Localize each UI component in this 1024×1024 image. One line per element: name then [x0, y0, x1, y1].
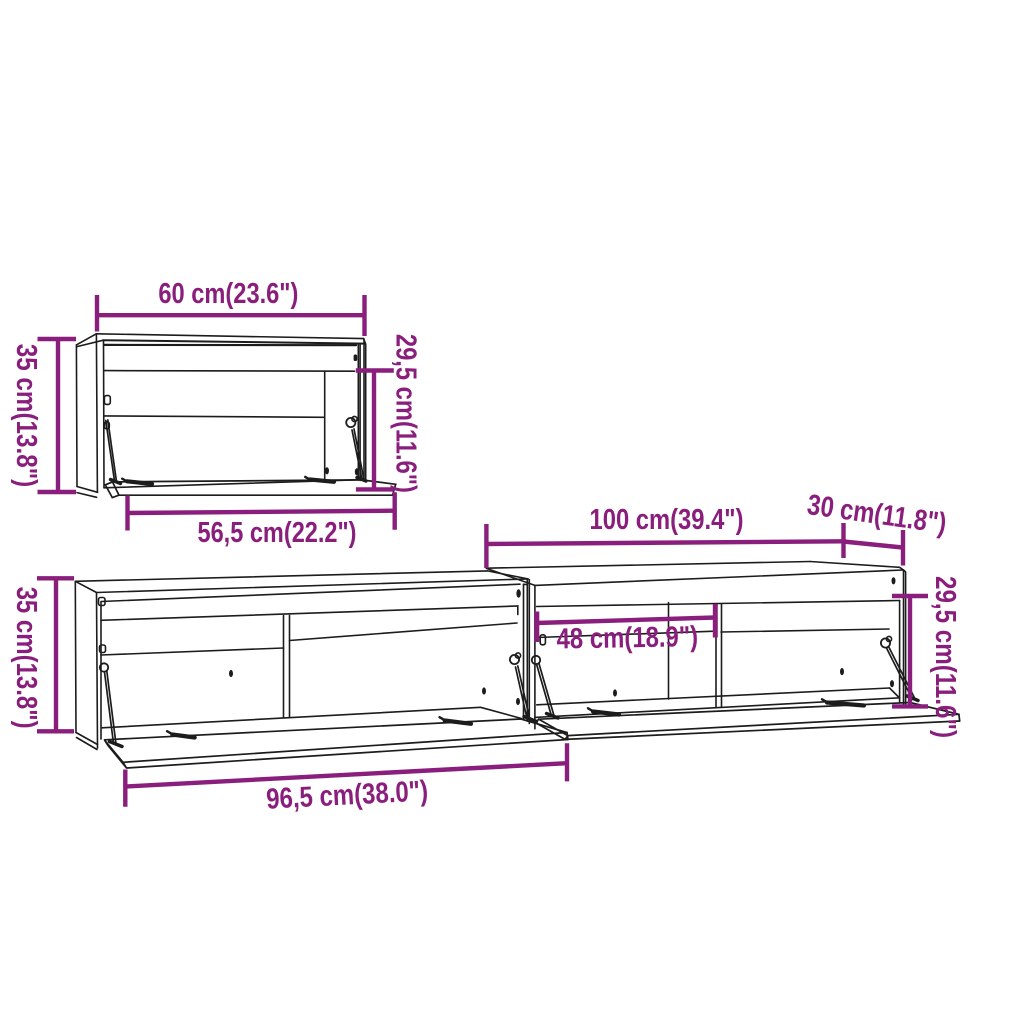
svg-text:60 cm(23.6"): 60 cm(23.6") — [158, 278, 298, 310]
svg-text:35 cm(13.8"): 35 cm(13.8") — [10, 344, 42, 488]
svg-text:100 cm(39.4"): 100 cm(39.4") — [590, 504, 744, 536]
svg-text:35 cm(13.8"): 35 cm(13.8") — [10, 587, 42, 729]
svg-text:56,5 cm(22.2"): 56,5 cm(22.2") — [198, 517, 357, 549]
svg-text:29,5 cm(11.6"): 29,5 cm(11.6") — [390, 334, 422, 493]
svg-text:29,5 cm(11.6"): 29,5 cm(11.6") — [929, 576, 961, 738]
svg-text:48 cm(18.9"): 48 cm(18.9") — [556, 621, 698, 655]
